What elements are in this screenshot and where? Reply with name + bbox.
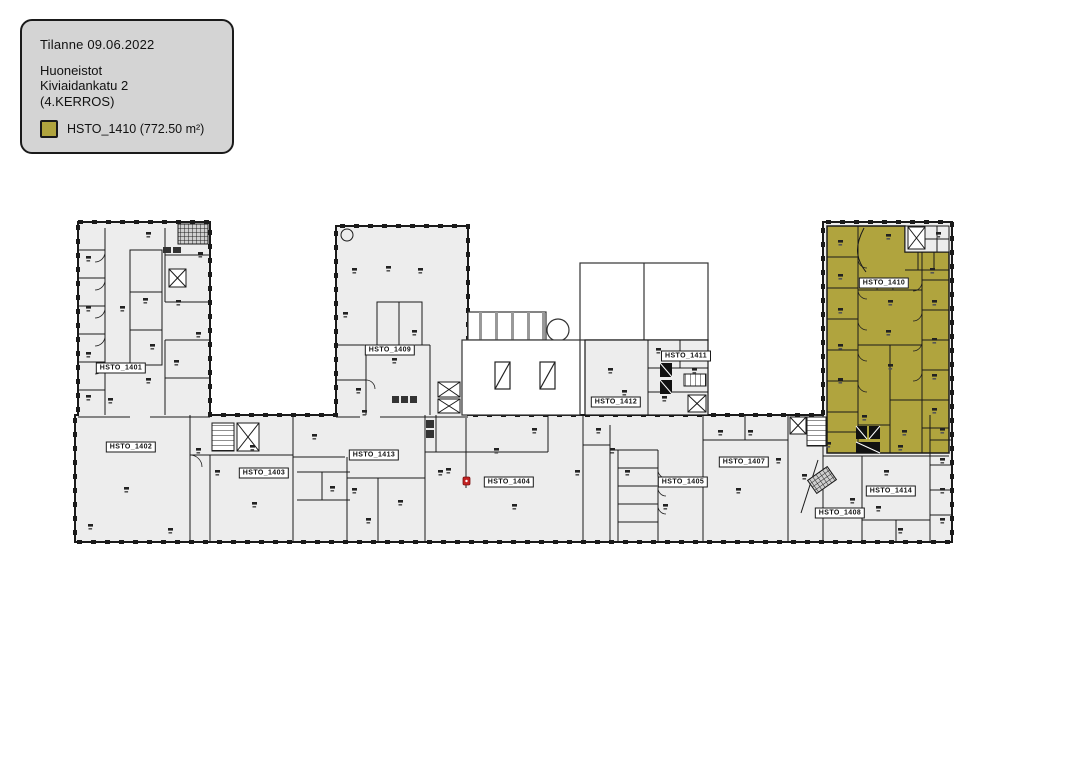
red-marker	[463, 477, 470, 485]
unit-label-hsto_1402[interactable]: HSTO_1402	[106, 442, 156, 453]
unit-label-hsto_1412[interactable]: HSTO_1412	[591, 397, 641, 408]
unit-label-hsto_1404[interactable]: HSTO_1404	[484, 477, 534, 488]
legend-highlight-swatch	[40, 120, 58, 138]
unit-hsto-1410-region[interactable]	[827, 226, 949, 453]
skylight-court	[462, 340, 580, 415]
unit-label-hsto_1414[interactable]: HSTO_1414	[866, 486, 916, 497]
unit-label-hsto_1411[interactable]: HSTO_1411	[661, 351, 711, 362]
stairwell-topright	[905, 226, 949, 252]
unit-label-hsto_1413[interactable]: HSTO_1413	[349, 450, 399, 461]
roof-dome	[547, 319, 569, 341]
legend-title: Tilanne 09.06.2022	[40, 37, 220, 52]
unit-label-hsto_1403[interactable]: HSTO_1403	[239, 468, 289, 479]
legend: Tilanne 09.06.2022 Huoneistot Kiviaidank…	[20, 19, 234, 154]
unit-label-hsto_1407[interactable]: HSTO_1407	[719, 457, 769, 468]
unit-label-hsto_1405[interactable]: HSTO_1405	[658, 477, 708, 488]
unit-label-hsto_1410[interactable]: HSTO_1410	[859, 278, 909, 289]
unit-label-hsto_1409[interactable]: HSTO_1409	[365, 345, 415, 356]
unit-label-hsto_1408[interactable]: HSTO_1408	[815, 508, 865, 519]
unit-label-hsto_1401[interactable]: HSTO_1401	[96, 363, 146, 374]
legend-highlight-label: HSTO_1410 (772.50 m²)	[67, 122, 204, 136]
legend-line-huoneistot: Huoneistot	[40, 63, 220, 78]
legend-line-floor: (4.KERROS)	[40, 94, 220, 109]
legend-line-address: Kiviaidankatu 2	[40, 78, 220, 93]
